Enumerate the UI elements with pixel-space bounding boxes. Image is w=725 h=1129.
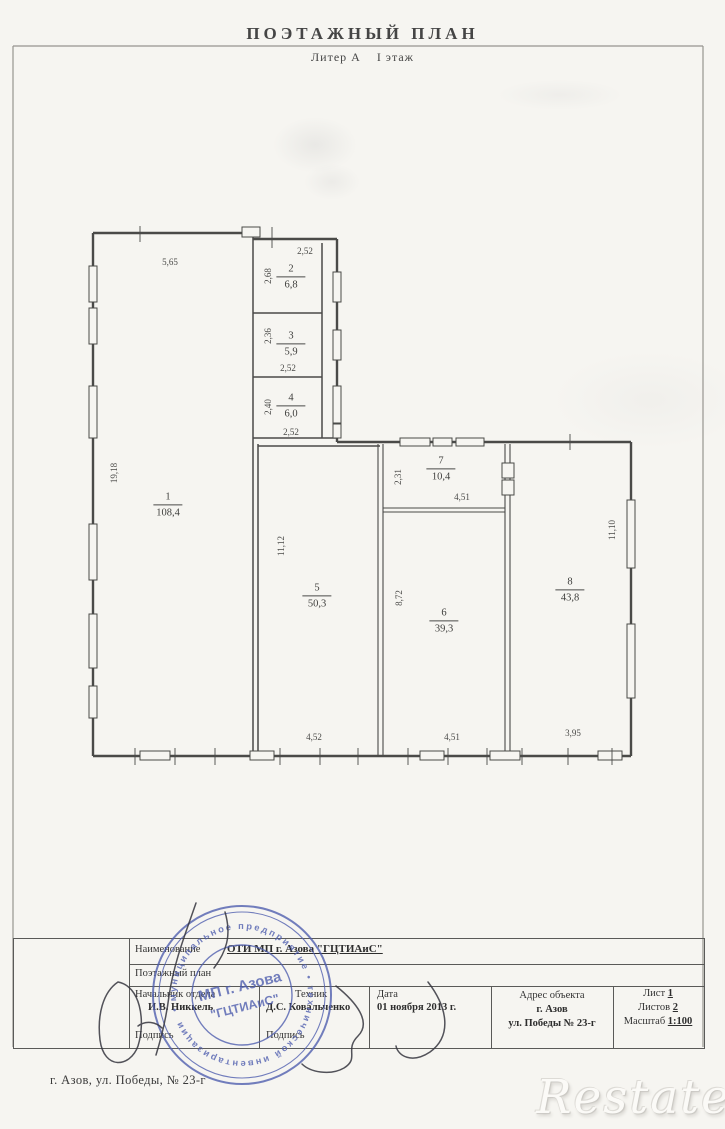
scale-row: Масштаб 1:100 [613, 1016, 703, 1027]
date-label: Дата [377, 989, 398, 1000]
room-6-label: 6 39,3 [429, 606, 458, 635]
dim-room2-top: 2,52 [297, 246, 313, 256]
room-number: 7 [426, 454, 455, 469]
sheet-value: 1 [668, 988, 673, 999]
room-8-label: 8 43,8 [555, 575, 584, 604]
dim-room3-left: 2,36 [263, 328, 273, 344]
title-block-table: Наименование ОТИ МП г. Азова "ГЦТИАиС" П… [13, 938, 705, 1049]
address-label: Адрес объекта [491, 990, 613, 1001]
room-5-label: 5 50,3 [302, 581, 331, 610]
technician-signature-label: Подпись [266, 1030, 305, 1041]
room-number: 2 [276, 262, 305, 277]
room-area: 5,9 [276, 345, 305, 359]
room-area: 6,0 [276, 407, 305, 421]
watermark: Restate [536, 1070, 725, 1125]
room-area: 39,3 [429, 622, 458, 636]
dim-room8-right: 11,10 [607, 520, 617, 540]
chief-signature-label: Подпись [135, 1030, 174, 1041]
table-line [369, 986, 370, 1048]
chief-label: Начальник отдела [135, 989, 215, 1000]
dimension-ticks [135, 226, 612, 765]
sheet-label: Лист [643, 988, 665, 999]
dim-room2-left: 2,68 [263, 268, 273, 284]
document-sheet: ПОЭТАЖНЫЙ ПЛАН Литер А I этаж 1 108,4 2 … [0, 0, 725, 1129]
scale-label: Масштаб [624, 1016, 665, 1027]
address-city: г. Азов [491, 1004, 613, 1015]
room-number: 3 [276, 329, 305, 344]
room-area: 10,4 [426, 470, 455, 484]
room-area: 50,3 [302, 597, 331, 611]
room-number: 1 [153, 490, 182, 505]
doc-type: Поэтажный план [135, 968, 211, 979]
org-name-label: Наименование [135, 944, 200, 955]
room-area: 6,8 [276, 278, 305, 292]
room-7-label: 7 10,4 [426, 454, 455, 483]
dim-room1-left: 19,18 [109, 463, 119, 483]
address-street: ул. Победы № 23-г [491, 1018, 613, 1029]
chief-name: И.В. Никкель [148, 1002, 213, 1013]
table-line [259, 986, 260, 1048]
room-4-label: 4 6,0 [276, 391, 305, 420]
dim-room4-bottom: 2,52 [283, 427, 299, 437]
page-subtitle: Литер А I этаж [0, 50, 725, 65]
dim-room5-left: 11,12 [276, 536, 286, 556]
room-number: 4 [276, 391, 305, 406]
technician-name: Д.С. Ковальченко [266, 1002, 350, 1013]
dim-room4-left: 2,40 [263, 399, 273, 415]
date-value: 01 ноября 2013 г. [377, 1002, 456, 1013]
room-number: 6 [429, 606, 458, 621]
dim-room6-bottom: 4,51 [444, 732, 460, 742]
dim-room8-bottom: 3,95 [565, 728, 581, 738]
interior-walls [253, 233, 380, 756]
sheet-row: Лист 1 [613, 988, 703, 999]
dim-room7-bottom: 4,51 [454, 492, 470, 502]
table-line [129, 964, 704, 965]
room-2-label: 2 6,8 [276, 262, 305, 291]
room-area: 43,8 [555, 591, 584, 605]
room-number: 8 [555, 575, 584, 590]
dim-room1-top: 5,65 [162, 257, 178, 267]
room-area: 108,4 [153, 506, 182, 520]
org-name-value: ОТИ МП г. Азова "ГЦТИАиС" [227, 943, 383, 955]
footer-address: г. Азов, ул. Победы, № 23-г [50, 1073, 206, 1088]
scale-value: 1:100 [668, 1016, 693, 1027]
sheets-label: Листов [638, 1002, 670, 1013]
sheet-frame [13, 46, 703, 1047]
room-number: 5 [302, 581, 331, 596]
room-1-label: 1 108,4 [153, 490, 182, 519]
table-line [129, 986, 704, 987]
dim-room5-bottom: 4,52 [306, 732, 322, 742]
technician-label: Техник [295, 989, 327, 1000]
sheets-value: 2 [673, 1002, 678, 1013]
sheets-row: Листов 2 [613, 1002, 703, 1013]
dim-room6-left: 8,72 [394, 590, 404, 606]
room-3-label: 3 5,9 [276, 329, 305, 358]
table-line [129, 939, 130, 1048]
page-title: ПОЭТАЖНЫЙ ПЛАН [0, 24, 725, 44]
dim-room3-bottom: 2,52 [280, 363, 296, 373]
dim-room7-left: 2,31 [393, 469, 403, 485]
